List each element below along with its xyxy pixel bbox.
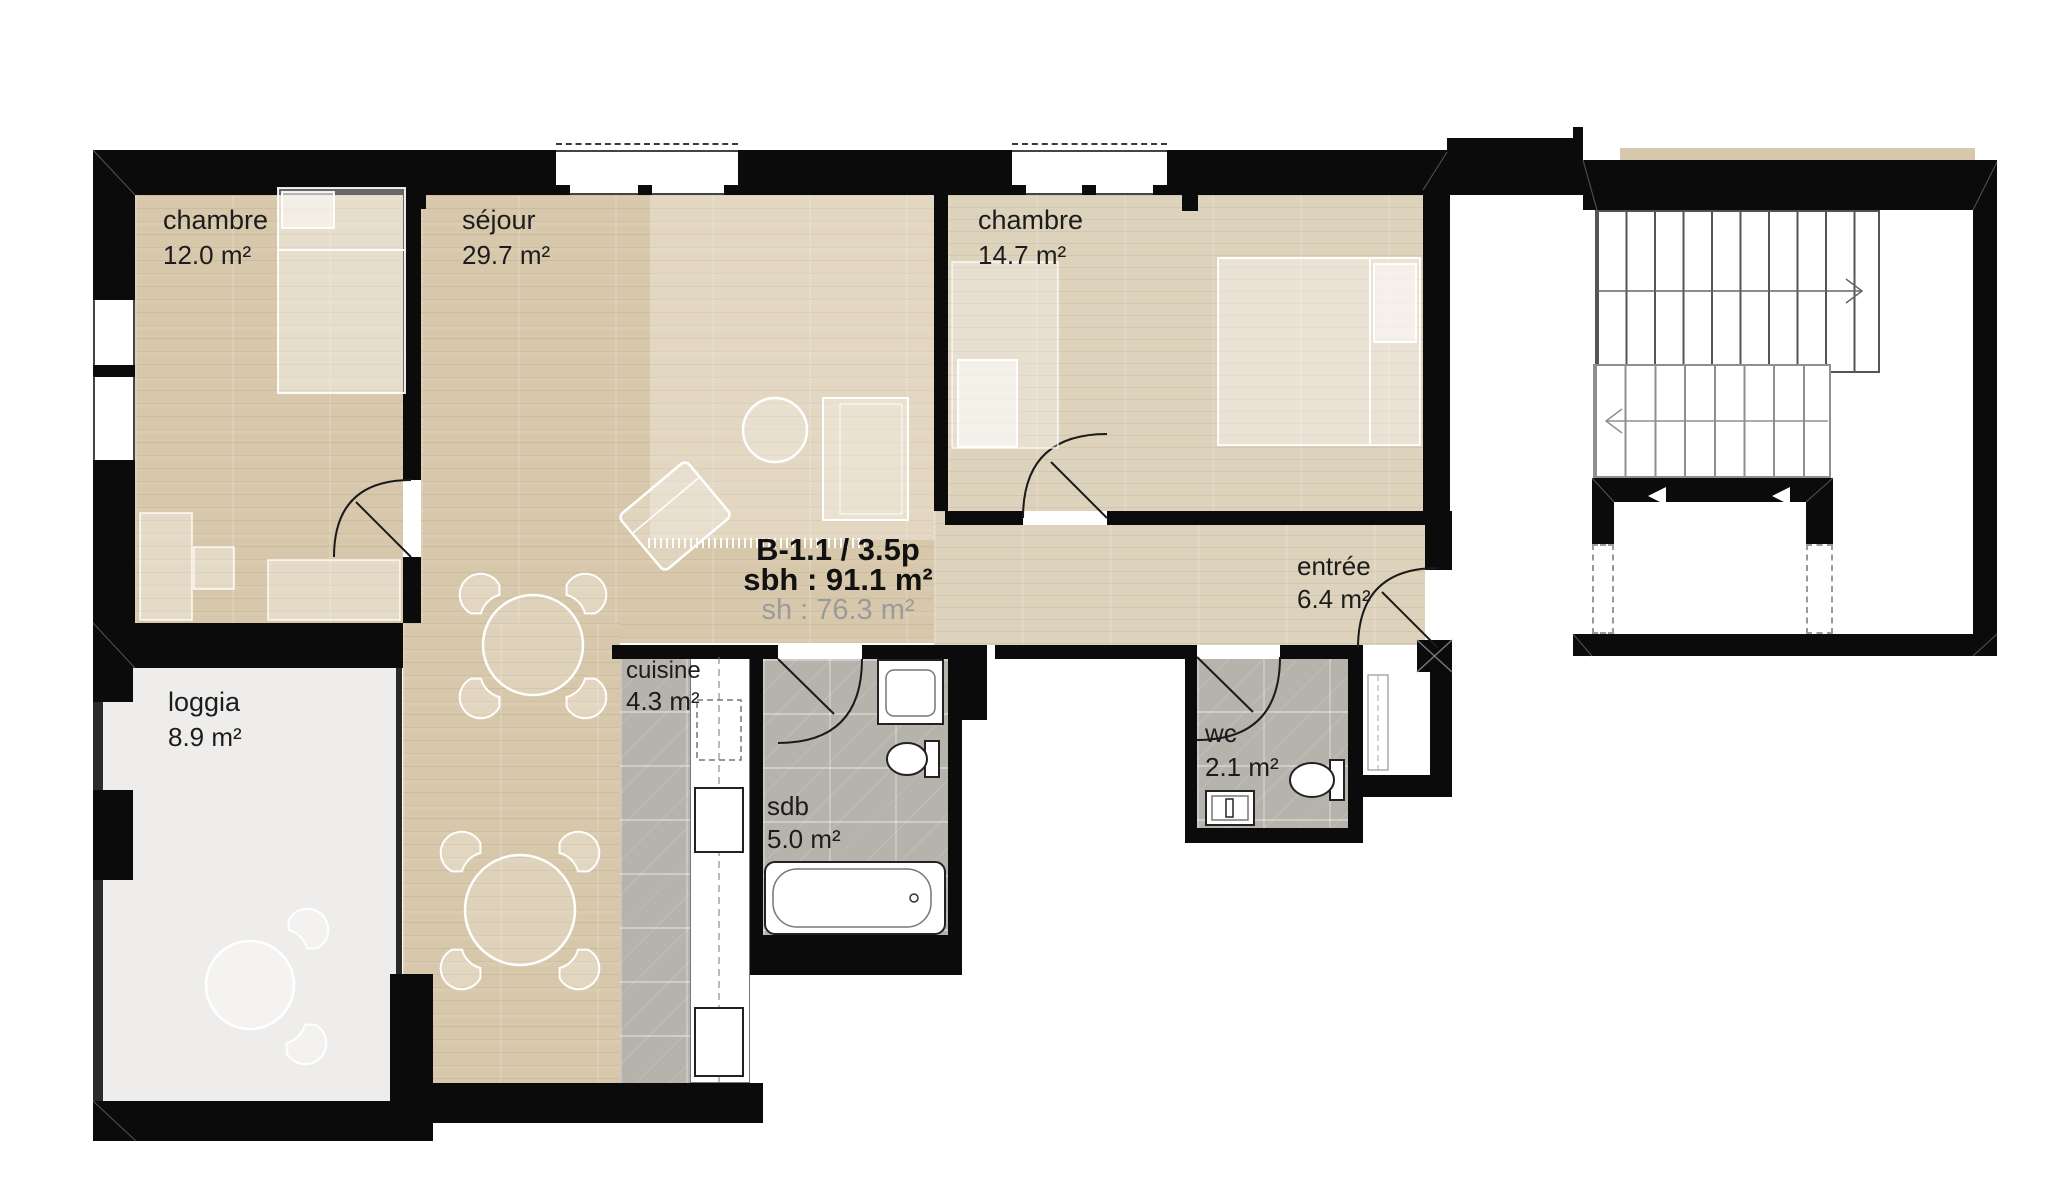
room-area: 4.3 m² [626,686,701,717]
sofa [823,398,908,520]
room-name: sdb [767,790,841,823]
room-area: 2.1 m² [1205,750,1279,784]
room-name: séjour [462,203,550,238]
bed [1218,258,1420,445]
unit-id: B-1.1 / 3.5p [708,535,968,565]
wardrobe [1368,675,1388,770]
room-area: 8.9 m² [168,720,242,755]
room-name: entrée [1297,550,1371,583]
room-label-chambre-2: chambre 14.7 m² [978,203,1083,273]
toilet-icon [887,741,939,777]
room-area: 14.7 m² [978,238,1083,273]
room-name: chambre [163,203,268,238]
stair-direction-arrow [1598,279,1862,303]
room-name: chambre [978,203,1083,238]
bathtub [765,862,945,934]
floor-plan: chambre 12.0 m² séjour 29.7 m² chambre 1… [0,0,2070,1202]
room-label-chambre-1: chambre 12.0 m² [163,203,268,273]
coffee-table [743,398,807,462]
unit-sh: sh : 76.3 m² [708,595,968,625]
room-name: loggia [168,685,242,720]
room-label-wc: wc 2.1 m² [1205,716,1279,784]
room-name: wc [1205,716,1279,750]
room-area: 5.0 m² [767,823,841,856]
bed [278,188,405,393]
loggia-table [206,941,294,1029]
room-label-loggia: loggia 8.9 m² [168,685,242,755]
desk [140,513,400,620]
stair-direction-arrow [1606,409,1828,433]
washbasin [878,660,943,724]
landing-door-glyph [1648,487,1790,505]
kitchen-appliance [695,657,743,1083]
fixtures-overlay [0,0,2070,1202]
dining-table [465,595,583,965]
wardrobe [952,262,1058,448]
room-label-sejour: séjour 29.7 m² [462,203,550,273]
room-area: 6.4 m² [1297,583,1371,616]
room-label-sdb: sdb 5.0 m² [767,790,841,856]
room-area: 12.0 m² [163,238,268,273]
room-area: 29.7 m² [462,238,550,273]
room-label-cuisine: cuisine 4.3 m² [626,655,701,717]
washbasin [1206,791,1254,825]
room-label-entree: entrée 6.4 m² [1297,550,1371,616]
room-name: cuisine [626,655,701,686]
unit-title-block: B-1.1 / 3.5p sbh : 91.1 m² sh : 76.3 m² [708,535,968,625]
toilet-icon [1290,760,1344,800]
unit-sbh: sbh : 91.1 m² [708,565,968,595]
